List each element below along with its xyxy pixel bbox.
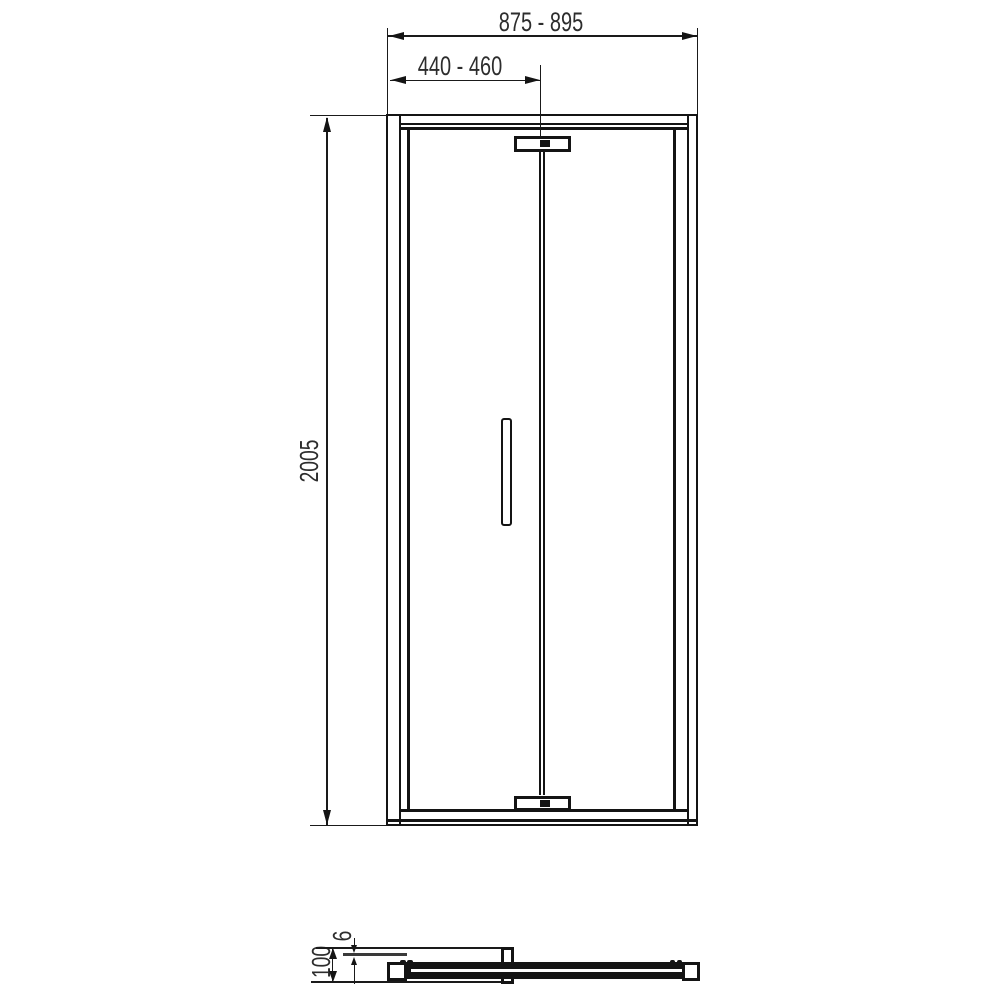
screw-cap-icon	[407, 960, 413, 967]
extension-line-right	[697, 28, 698, 114]
extension-line-top	[310, 115, 387, 116]
dim-overall-width-label: 875 - 895	[467, 9, 615, 35]
bottom-pivot-notch	[540, 800, 550, 807]
door-handle	[501, 418, 512, 526]
top-pivot-notch	[540, 140, 550, 147]
wall-profile-right-line	[687, 114, 689, 826]
extension-line-center	[540, 65, 541, 137]
arrow-down-icon	[323, 810, 331, 825]
wall-profile-block-right	[682, 962, 700, 981]
door-panel-left-edge	[407, 128, 410, 811]
top-rail-line-upper	[401, 123, 687, 125]
bottom-rail-line-lower	[388, 819, 697, 822]
screw-cap-icon	[670, 960, 676, 967]
dim-height-label: 2005	[297, 402, 321, 520]
arrow-up-icon	[323, 117, 331, 132]
center-fold-divider	[539, 152, 545, 795]
arrow-up-icon	[329, 948, 337, 959]
arrow-down-icon	[351, 945, 357, 953]
wall-profile-left-line	[399, 114, 401, 826]
dim-line	[326, 118, 328, 825]
door-panel-right-edge	[673, 128, 676, 811]
arrow-left-icon	[389, 32, 404, 40]
bottom-rail-channel	[411, 969, 682, 973]
wall-profile-block-left	[387, 962, 407, 981]
arrow-right-icon	[682, 32, 697, 40]
arrow-right-icon	[525, 76, 540, 84]
arrow-left-icon	[391, 76, 406, 84]
arrow-down-icon	[329, 971, 337, 982]
extension-line-back	[311, 981, 513, 982]
technical-drawing-canvas: 875 - 895 440 - 460 2005	[0, 0, 1000, 1000]
dim-half-width-label: 440 - 460	[386, 53, 534, 79]
extension-line-front	[316, 947, 502, 948]
dim-line	[388, 35, 698, 37]
dim-line	[390, 80, 541, 82]
extension-line-bottom	[310, 825, 387, 826]
top-rail-line-lower	[401, 127, 687, 130]
glass-pane-line	[343, 953, 407, 956]
